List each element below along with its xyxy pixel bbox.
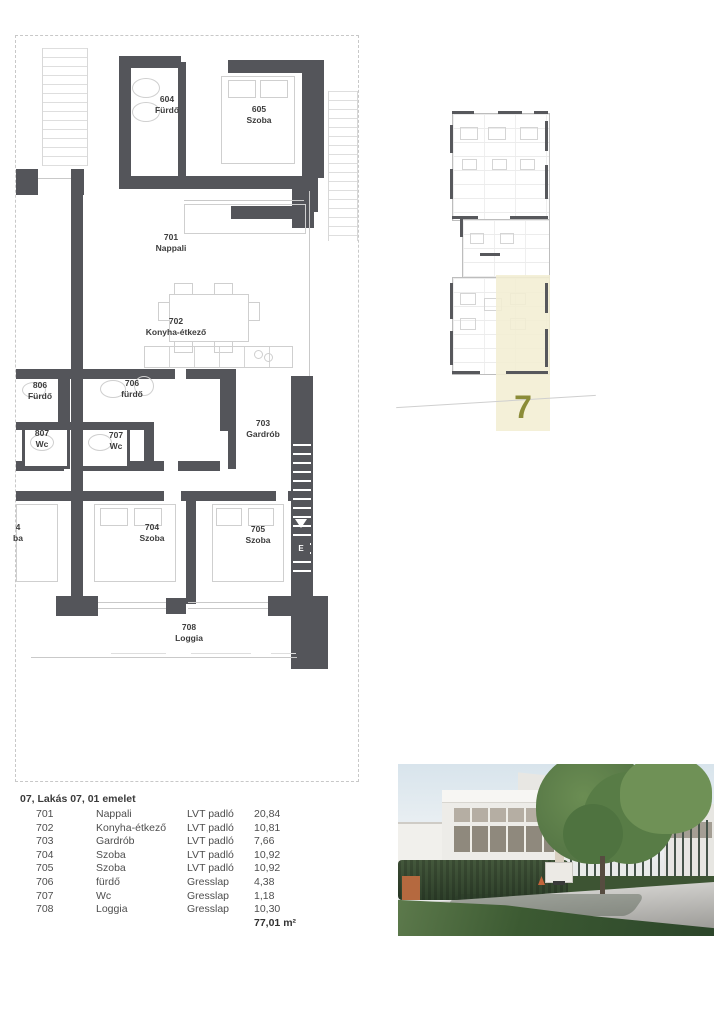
furniture-outline	[174, 283, 193, 295]
cell-area: 10,92	[254, 849, 324, 863]
room-name: Wc	[16, 439, 68, 450]
key-plan: 7	[440, 103, 570, 438]
room-code: 4	[2, 522, 34, 533]
wall	[450, 169, 453, 199]
floor-plan: E 604 Fürdő 605 Szoba 701 Nappali 702 Ko…	[15, 35, 359, 782]
wall	[186, 369, 220, 379]
cell-code: 702	[20, 822, 96, 836]
dimension-line	[271, 653, 296, 654]
cell-name: Konyha-étkező	[96, 822, 187, 836]
table-row: 702 Konyha-étkező LVT padló 10,81	[20, 822, 350, 836]
hatch-area	[328, 91, 358, 241]
stair-direction-arrow	[295, 519, 307, 528]
cell-code: 708	[20, 903, 96, 917]
room-label-706: 706 fürdő	[94, 378, 170, 400]
building-photo	[398, 764, 714, 936]
cell-floor: Gresslap	[187, 890, 254, 904]
wall	[16, 491, 164, 501]
room-name: Nappali	[116, 243, 226, 254]
cell-name: Gardrób	[96, 835, 187, 849]
wall	[450, 283, 453, 319]
cell-area: 1,18	[254, 890, 324, 904]
room-code: 702	[106, 316, 246, 327]
table-total-row: 77,01 m²	[20, 917, 350, 931]
wall	[452, 111, 474, 114]
furniture-outline	[520, 127, 538, 140]
wall	[452, 216, 478, 219]
room-label-704: 704 Szoba	[112, 522, 192, 544]
room-name: Fürdő	[10, 391, 70, 402]
cell-code: 707	[20, 890, 96, 904]
table-row: 703 Gardrób LVT padló 7,66	[20, 835, 350, 849]
room-label-707: 707 Wc	[86, 430, 146, 452]
line	[38, 178, 71, 179]
wall	[506, 371, 548, 374]
room-label-605: 605 Szoba	[216, 104, 302, 126]
room-code: 705	[220, 524, 296, 535]
area-table: 07, Lakás 07, 01 emelet 701 Nappali LVT …	[20, 793, 350, 930]
line	[309, 191, 310, 376]
room-name: ba	[2, 533, 34, 544]
wall	[186, 491, 196, 604]
cell-floor: LVT padló	[187, 822, 254, 836]
cell-code: 703	[20, 835, 96, 849]
tree-trunk	[600, 856, 605, 894]
furniture-outline	[462, 159, 477, 170]
cell-name: Szoba	[96, 849, 187, 863]
furniture-outline	[500, 233, 514, 244]
wall	[534, 111, 548, 114]
dimension-line	[191, 653, 251, 654]
total-area: 77,01 m²	[254, 917, 324, 931]
room-code: 707	[86, 430, 146, 441]
wall	[545, 329, 548, 367]
wall	[460, 219, 463, 237]
furniture-outline	[460, 318, 476, 330]
room-code: 704	[112, 522, 192, 533]
line	[188, 602, 268, 603]
cell-code: 704	[20, 849, 96, 863]
furniture-outline	[520, 159, 535, 170]
wall	[16, 169, 38, 195]
room-code: 807	[16, 428, 68, 439]
wall	[545, 121, 548, 151]
cell-area: 4,38	[254, 876, 324, 890]
wall	[220, 369, 228, 431]
hatch-area	[42, 48, 88, 166]
wall	[178, 62, 186, 178]
cell-area: 10,92	[254, 862, 324, 876]
wall	[71, 176, 83, 596]
furniture-outline	[214, 283, 233, 295]
room-name: Szoba	[216, 115, 302, 126]
dimension-line	[111, 653, 166, 654]
orange-gate	[402, 876, 420, 900]
cart-wheel	[553, 881, 565, 885]
wall	[56, 596, 98, 616]
line	[98, 608, 166, 609]
wall	[450, 125, 453, 153]
room-code: 701	[116, 232, 226, 243]
spacer	[187, 917, 254, 931]
wall	[510, 216, 548, 219]
key-plan-middle-block	[462, 219, 550, 279]
hob-ring	[264, 353, 273, 362]
cell-code: 701	[20, 808, 96, 822]
wall	[302, 60, 324, 178]
furniture-outline	[228, 80, 256, 98]
furniture-outline	[184, 204, 306, 234]
wall	[498, 111, 522, 114]
furniture-outline	[460, 127, 478, 140]
table-row: 701 Nappali LVT padló 20,84	[20, 808, 350, 822]
line	[184, 200, 304, 201]
wall	[480, 253, 500, 256]
tree-canopy	[563, 804, 623, 864]
wall	[119, 176, 309, 189]
room-label-604: 604 Fürdő	[134, 94, 200, 116]
room-name: Wc	[86, 441, 146, 452]
table-row: 707 Wc Gresslap 1,18	[20, 890, 350, 904]
room-label-clipped: 4 ba	[2, 522, 34, 544]
wall	[119, 56, 131, 189]
hob-ring	[254, 350, 263, 359]
spacer	[20, 917, 96, 931]
cell-area: 10,81	[254, 822, 324, 836]
room-name: Fürdő	[134, 105, 200, 116]
room-label-703: 703 Gardrób	[228, 418, 298, 440]
wall	[166, 598, 186, 614]
table-title: 07, Lakás 07, 01 emelet	[20, 793, 350, 805]
wall	[450, 331, 453, 365]
line	[188, 608, 268, 609]
wall	[545, 283, 548, 313]
room-label-807: 807 Wc	[16, 428, 68, 450]
furniture-outline	[470, 233, 484, 244]
table-row: 708 Loggia Gresslap 10,30	[20, 903, 350, 917]
wall	[545, 165, 548, 199]
cell-floor: LVT padló	[187, 862, 254, 876]
table-row: 704 Szoba LVT padló 10,92	[20, 849, 350, 863]
room-label-705: 705 Szoba	[220, 524, 296, 546]
furniture-outline	[260, 80, 288, 98]
room-name: fürdő	[94, 389, 170, 400]
cell-floor: Gresslap	[187, 876, 254, 890]
cart-box	[545, 862, 573, 883]
room-code: 605	[216, 104, 302, 115]
line	[98, 602, 166, 603]
furniture-outline	[460, 293, 476, 305]
room-code: 703	[228, 418, 298, 429]
room-name: Konyha-étkező	[106, 327, 246, 338]
table-row: 706 fürdő Gresslap 4,38	[20, 876, 350, 890]
room-name: Szoba	[112, 533, 192, 544]
page: E 604 Fürdő 605 Szoba 701 Nappali 702 Ko…	[0, 0, 715, 1024]
cell-area: 10,30	[254, 903, 324, 917]
room-code: 706	[94, 378, 170, 389]
room-label-708: 708 Loggia	[144, 622, 234, 644]
cell-floor: Gresslap	[187, 903, 254, 917]
cell-floor: LVT padló	[187, 835, 254, 849]
furniture-outline	[248, 302, 260, 321]
wall	[178, 461, 220, 471]
unit-number: 7	[500, 385, 546, 429]
cell-name: Nappali	[96, 808, 187, 822]
cell-code: 706	[20, 876, 96, 890]
cell-name: Loggia	[96, 903, 187, 917]
wall	[291, 596, 328, 669]
room-name: Gardrób	[228, 429, 298, 440]
cell-name: Wc	[96, 890, 187, 904]
spacer	[96, 917, 187, 931]
loggia-railing	[31, 657, 297, 658]
cell-floor: LVT padló	[187, 808, 254, 822]
room-label-806: 806 Fürdő	[10, 380, 70, 402]
cell-floor: LVT padló	[187, 849, 254, 863]
room-code: 604	[134, 94, 200, 105]
cell-name: Szoba	[96, 862, 187, 876]
room-label-702: 702 Konyha-étkező	[106, 316, 246, 338]
room-label-701: 701 Nappali	[116, 232, 226, 254]
cell-area: 20,84	[254, 808, 324, 822]
room-name: Loggia	[144, 633, 234, 644]
furniture-outline	[492, 159, 507, 170]
cell-name: fürdő	[96, 876, 187, 890]
wall	[452, 371, 480, 374]
furniture-outline	[488, 127, 506, 140]
cell-code: 705	[20, 862, 96, 876]
room-code: 806	[10, 380, 70, 391]
cell-area: 7,66	[254, 835, 324, 849]
tree-canopy	[620, 764, 712, 834]
room-name: Szoba	[220, 535, 296, 546]
table-row: 705 Szoba LVT padló 10,92	[20, 862, 350, 876]
room-code: 708	[144, 622, 234, 633]
